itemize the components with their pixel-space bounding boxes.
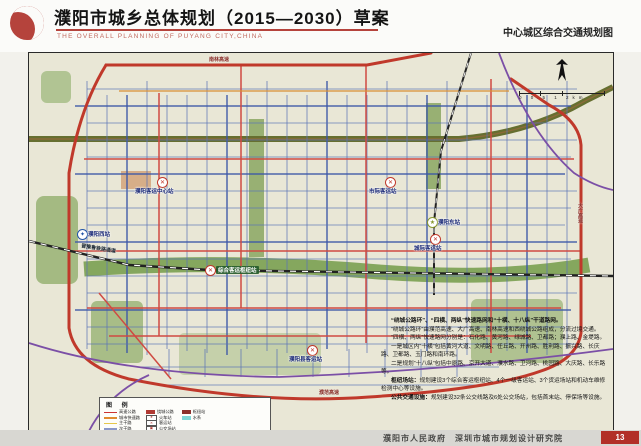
title-underline [56, 29, 378, 31]
note-text: 规划建设32条公交线路及6处公交场站，包括首末站、停保场等设施。 [431, 395, 605, 401]
note-line: 二是规划“十八纵”包括中原路、京开大道、濮水路、卫河路、桃园路、大庆路、长乐路等… [381, 360, 609, 377]
station-intercity-north: ✕ 市际客运站 [385, 177, 396, 188]
legend-swatch [182, 416, 191, 420]
page-subtitle-english: THE OVERALL PLANNING OF PUYANG CITY,CHIN… [57, 33, 263, 40]
legend-item: 绕城公路 [146, 410, 176, 415]
road-label-ring-north: 南林高速 [209, 56, 229, 63]
legend-swatch [182, 410, 191, 414]
scale-bar: 0 0.5 1 2km [519, 93, 605, 100]
note-line: 一是城区内“十横”包括黄河大道、文明路、任丘路、开州路、胜利路、振兴路、长庆路、… [381, 343, 609, 360]
legend-swatch [104, 423, 117, 425]
note-line: “绕城公路环”由濮范高速、大广高速、南林高速和西绕城公路组成，分流过境交通。 [381, 326, 609, 335]
legend-title: 图 例 [106, 400, 266, 409]
note-line: “四横、两纵”快速路网分别是：石化路、黄河路、绿城路、卫都路；濮上路、金堤路。 [381, 334, 609, 343]
station-county-coach: ✕ 濮阳县客运站 [307, 345, 318, 356]
legend-column-areas: 枢纽站 水系 [182, 410, 206, 432]
station-label: 濮阳东站 [438, 218, 460, 226]
station-label: 濮阳县客运站 [289, 355, 322, 363]
north-arrow-icon [554, 59, 570, 90]
station-label: 市际客运站 [369, 187, 397, 195]
station-label: 濮阳西站 [88, 230, 110, 238]
planning-bureau-logo-icon [10, 6, 44, 40]
station-comprehensive-hub: ✕ 综合客运枢纽站 [205, 265, 216, 276]
hub-station-icon: ✕ [205, 265, 216, 276]
note-lead: 公共交通设施： [391, 395, 431, 401]
note-line: “绕城公路环”、“四横、两纵”快速路网和“十横、十八纵”干道路网。 [381, 317, 609, 326]
station-passenger-center: ✕ 濮阳客运中心站 [157, 177, 168, 188]
map-sheet-name: 中心城区综合交通规划图 [503, 24, 613, 39]
station-intercity-east: ✕ 城际客运站 [430, 234, 441, 245]
planning-poster: 濮阳市城乡总体规划（2015—2030）草案 THE OVERALL PLANN… [0, 0, 641, 446]
legend-item: 水系 [182, 416, 206, 421]
page-number-badge: 13 [601, 431, 639, 444]
legend-column-roads: 高速公路 城市快速路 主干路 次干路 支路 [104, 410, 140, 432]
note-line: 枢纽场站：规划建设3个综合客运枢纽站、4个一级客运站、3个货运场站和机动车维修检… [381, 377, 609, 394]
railway-station-icon: ✦ [77, 229, 88, 240]
legend-item: 枢纽站 [182, 410, 206, 415]
plan-notes: “绕城公路环”、“四横、两纵”快速路网和“十横、十八纵”干道路网。 “绕城公路环… [381, 317, 609, 402]
legend: 图 例 高速公路 城市快速路 主干路 次干路 支路 绕城公路 ★火车站 ✕客运站… [99, 397, 271, 432]
legend-swatch [104, 417, 117, 419]
note-line: 公共交通设施：规划建设32条公交线路及6处公交场站，包括首末站、停保场等设施。 [381, 394, 609, 403]
station-puyang-east: ★ 濮阳东站 [427, 217, 438, 228]
station-label: 综合客运枢纽站 [216, 266, 259, 274]
road-label-ring-south: 濮范高速 [319, 389, 339, 396]
legend-swatch [146, 410, 155, 414]
transport-plan-map: ✦ 濮阳西站 ✕ 濮阳客运中心站 ✕ 市际客运站 ★ 濮阳东站 ✕ 城际客运站 … [28, 52, 614, 432]
footer: 濮阳市人民政府 深圳市城市规划设计研究院 13 [0, 430, 641, 446]
legend-item: 高速公路 [104, 410, 140, 415]
railway-station-icon: ★ [427, 217, 438, 228]
station-label: 濮阳客运中心站 [135, 187, 174, 195]
page-title: 濮阳市城乡总体规划（2015—2030）草案 [54, 4, 390, 29]
road-label-ring-east: 大广高速 [577, 203, 584, 223]
header: 濮阳市城乡总体规划（2015—2030）草案 THE OVERALL PLANN… [0, 0, 641, 52]
credits-text: 濮阳市人民政府 深圳市城市规划设计研究院 [383, 433, 563, 444]
legend-swatch [104, 412, 117, 414]
legend-column-stations: 绕城公路 ★火车站 ✕客运站 ▣公交场站 ◆货运场站 [146, 410, 176, 432]
station-puyang-west: ✦ 濮阳西站 [77, 229, 88, 240]
station-label: 城际客运站 [414, 244, 442, 252]
note-lead: 枢纽场站： [391, 378, 419, 384]
